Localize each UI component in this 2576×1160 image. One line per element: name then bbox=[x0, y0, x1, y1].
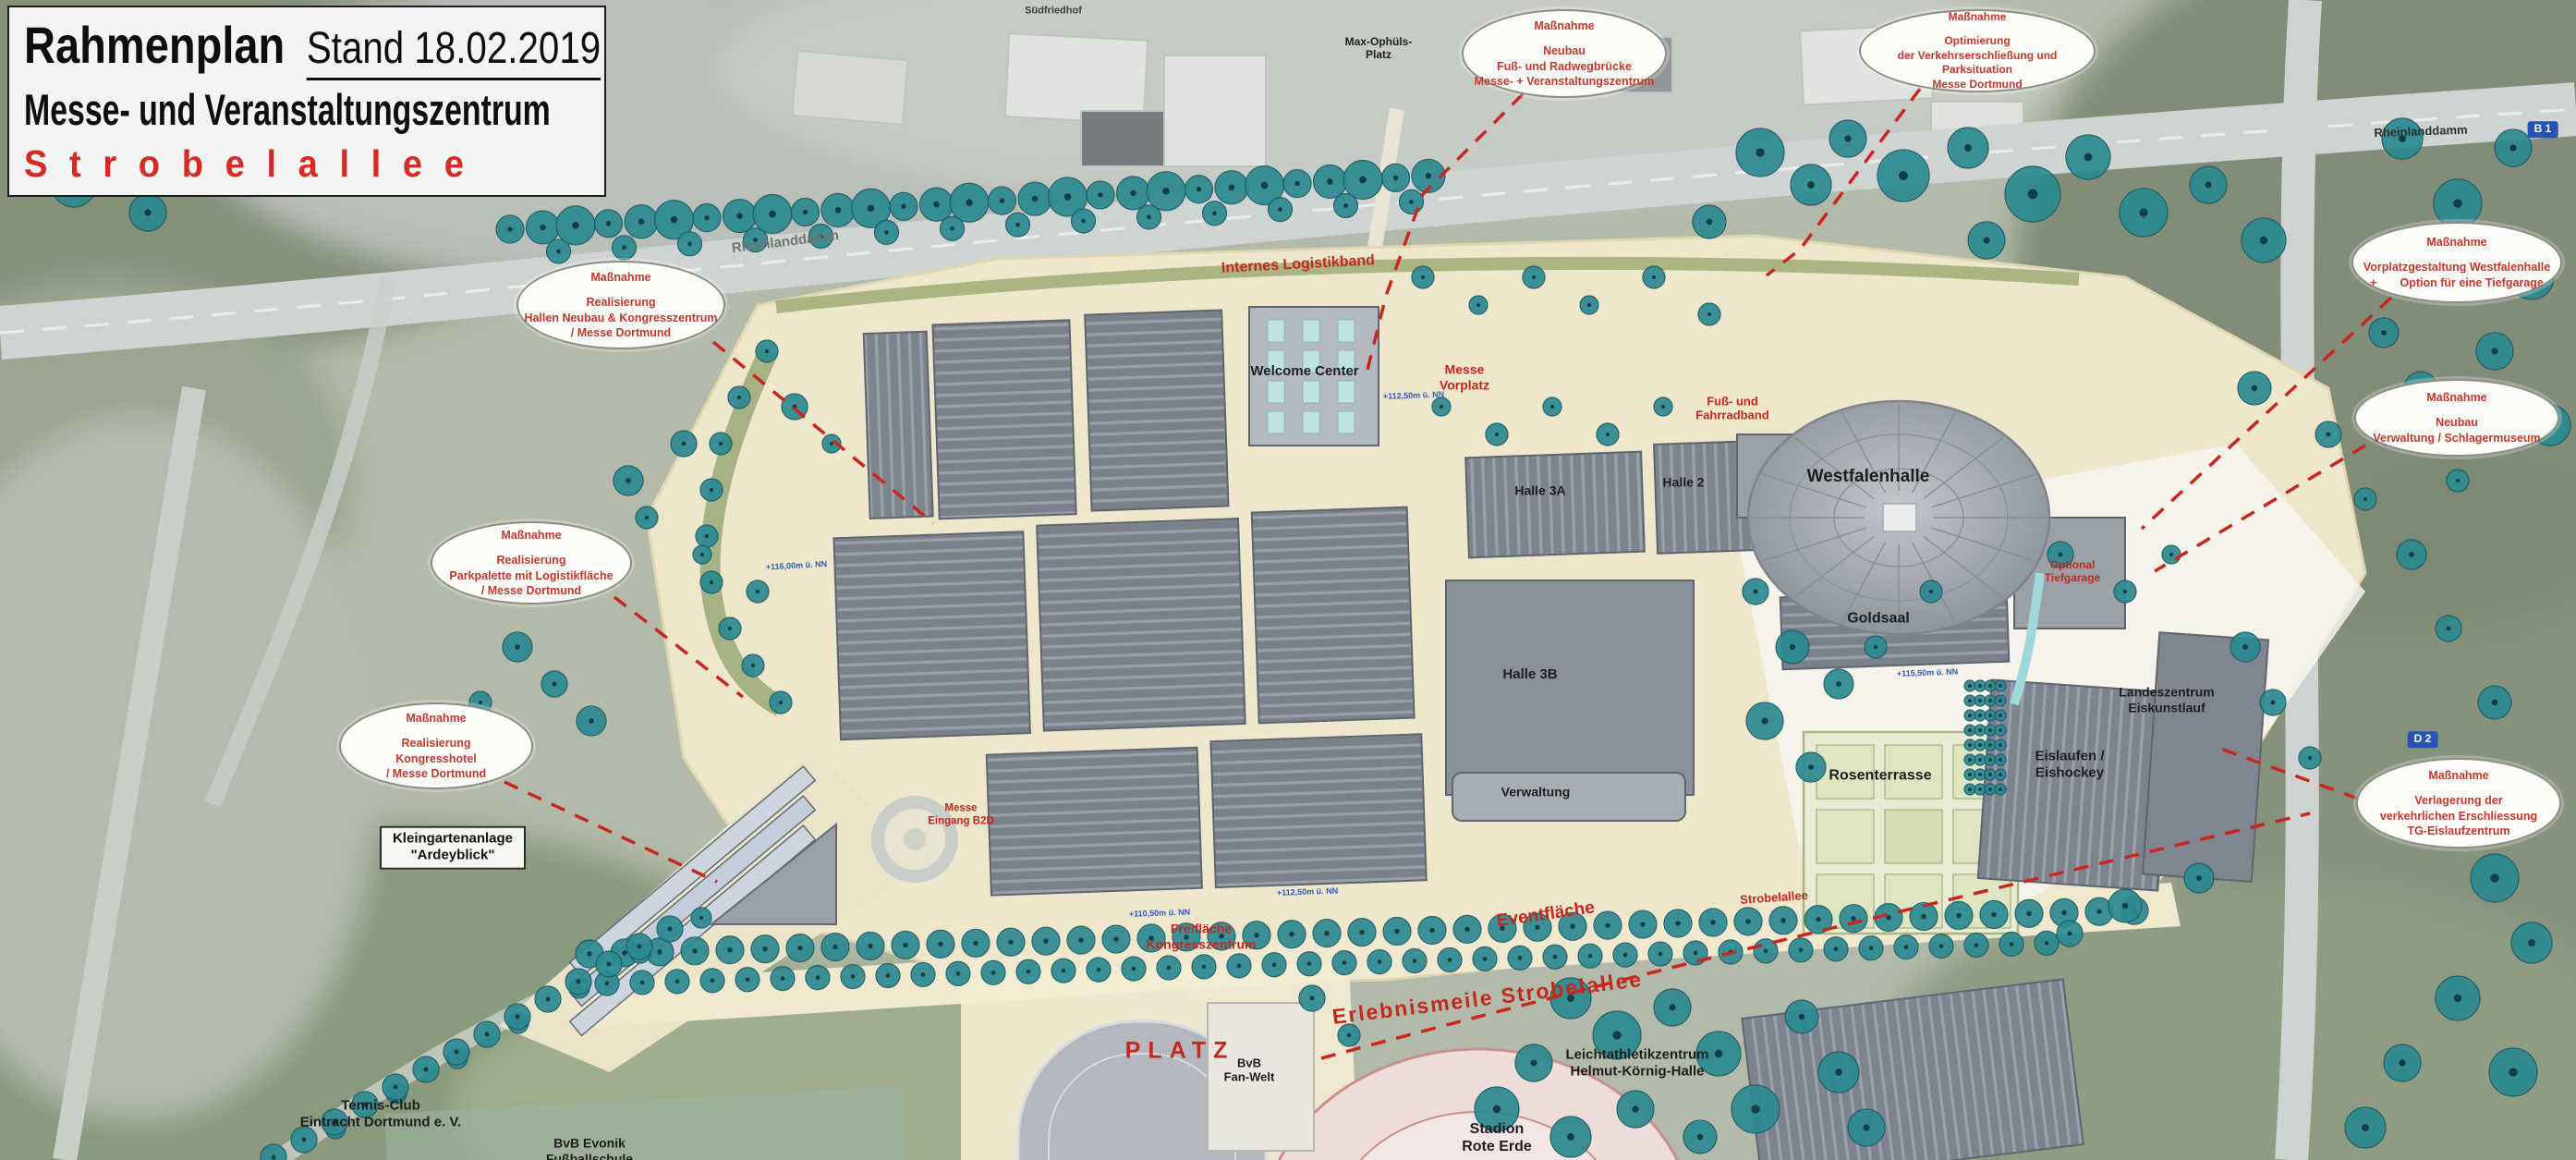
plan-highlight: S t r o b e l a l l e e bbox=[24, 142, 550, 186]
callout-vorplatz: Maßnahme Vorplatzgestaltung Westfalenhal… bbox=[2351, 222, 2562, 303]
callout-heading: Maßnahme bbox=[590, 270, 650, 285]
callout-heading: Maßnahme bbox=[2426, 390, 2486, 405]
callout-verwaltung: Maßnahme Neubau Verwaltung / Schlagermus… bbox=[2354, 379, 2559, 457]
callout-hallen: Maßnahme Realisierung Hallen Neubau & Ko… bbox=[516, 261, 725, 349]
callout-parkpalette: Maßnahme Realisierung Parkpalette mit Lo… bbox=[431, 521, 632, 604]
callout-heading: Maßnahme bbox=[2428, 768, 2488, 783]
westfalenhalle-dome bbox=[1748, 401, 2049, 634]
plan-subtitle: Messe- und Veranstaltungszentrum bbox=[24, 84, 431, 135]
callout-heading: Maßnahme bbox=[1949, 10, 2007, 25]
label-kleingartenanlage: Kleingartenanlage "Ardeyblick" bbox=[380, 826, 526, 870]
plan-status-date: Stand 18.02.2019 bbox=[307, 23, 601, 80]
road-sign-d2: D 2 bbox=[2408, 731, 2438, 748]
plan-title: Rahmenplan bbox=[24, 15, 285, 75]
road-sign-b1: B 1 bbox=[2528, 121, 2558, 138]
title-block: Rahmenplan Stand 18.02.2019 Messe- und V… bbox=[7, 6, 606, 197]
callout-heading: Maßnahme bbox=[1534, 18, 1594, 33]
callout-hotel: Maßnahme Realisierung Kongresshotel / Me… bbox=[339, 702, 533, 789]
rahmenplan-canvas: Rahmenplan Stand 18.02.2019 Messe- und V… bbox=[0, 0, 2576, 1160]
callout-bridge: Maßnahme Neubau Fuß- und Radwegbrücke Me… bbox=[1462, 9, 1667, 98]
callout-heading: Maßnahme bbox=[2426, 235, 2486, 250]
callout-eislauf: Maßnahme Verlagerung der verkehrlichen E… bbox=[2356, 758, 2561, 849]
callout-heading: Maßnahme bbox=[406, 711, 466, 726]
callout-heading: Maßnahme bbox=[501, 528, 561, 543]
callout-traffic: Maßnahme Optimierung der Verkehrserschli… bbox=[1859, 9, 2096, 92]
roundabout bbox=[878, 802, 952, 876]
welcome-center-building bbox=[1249, 307, 1379, 446]
